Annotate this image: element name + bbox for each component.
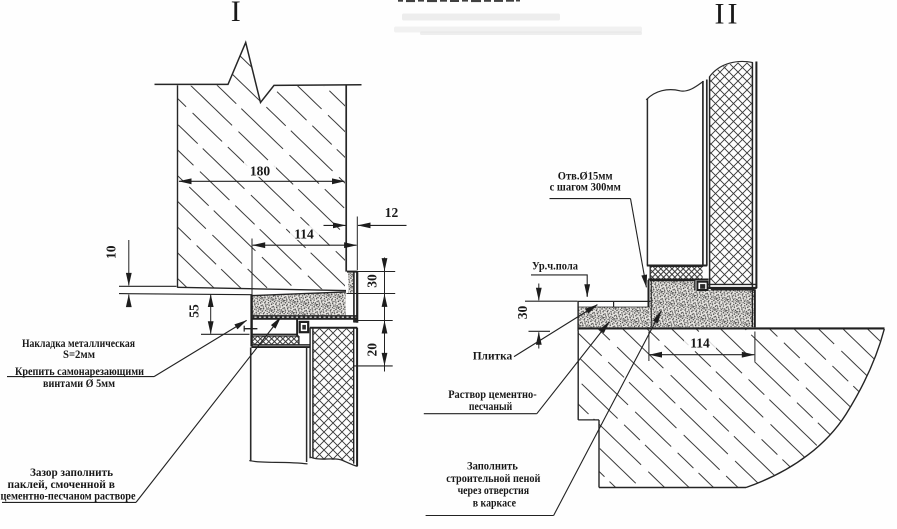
svg-text:12: 12 <box>385 205 399 220</box>
svg-text:20: 20 <box>364 343 379 357</box>
svg-text:цементно-песчаном растворе: цементно-песчаном растворе <box>1 490 136 502</box>
svg-text:S=2мм: S=2мм <box>63 349 95 361</box>
svg-text:Накладка металлическая: Накладка металлическая <box>22 338 135 350</box>
svg-text:в каркасе: в каркасе <box>473 497 516 509</box>
svg-text:30: 30 <box>365 274 380 288</box>
svg-text:с шагом 300мм: с шагом 300мм <box>550 181 621 193</box>
svg-text:55: 55 <box>187 304 202 318</box>
svg-text:песчаный: песчаный <box>469 401 513 413</box>
svg-text:Заполнить: Заполнить <box>467 461 518 473</box>
svg-text:114: 114 <box>690 336 710 351</box>
svg-text:I: I <box>231 0 241 28</box>
svg-text:180: 180 <box>250 164 271 179</box>
svg-text:Зазор заполнить: Зазор заполнить <box>30 467 113 479</box>
svg-text:Ур.ч.пола: Ур.ч.пола <box>532 260 578 272</box>
svg-text:через отверстия: через отверстия <box>458 485 529 497</box>
svg-text:30: 30 <box>515 306 530 320</box>
svg-text:10: 10 <box>104 245 119 259</box>
svg-text:Раствор цементно-: Раствор цементно- <box>448 389 537 401</box>
svg-text:строительной пеной: строительной пеной <box>446 473 540 485</box>
svg-text:Плитка: Плитка <box>473 350 513 362</box>
svg-text:паклей, смоченной в: паклей, смоченной в <box>8 479 115 491</box>
svg-text:винтами Ø 5мм: винтами Ø 5мм <box>43 378 115 390</box>
svg-text:II: II <box>715 0 741 31</box>
svg-text:114: 114 <box>294 227 314 242</box>
